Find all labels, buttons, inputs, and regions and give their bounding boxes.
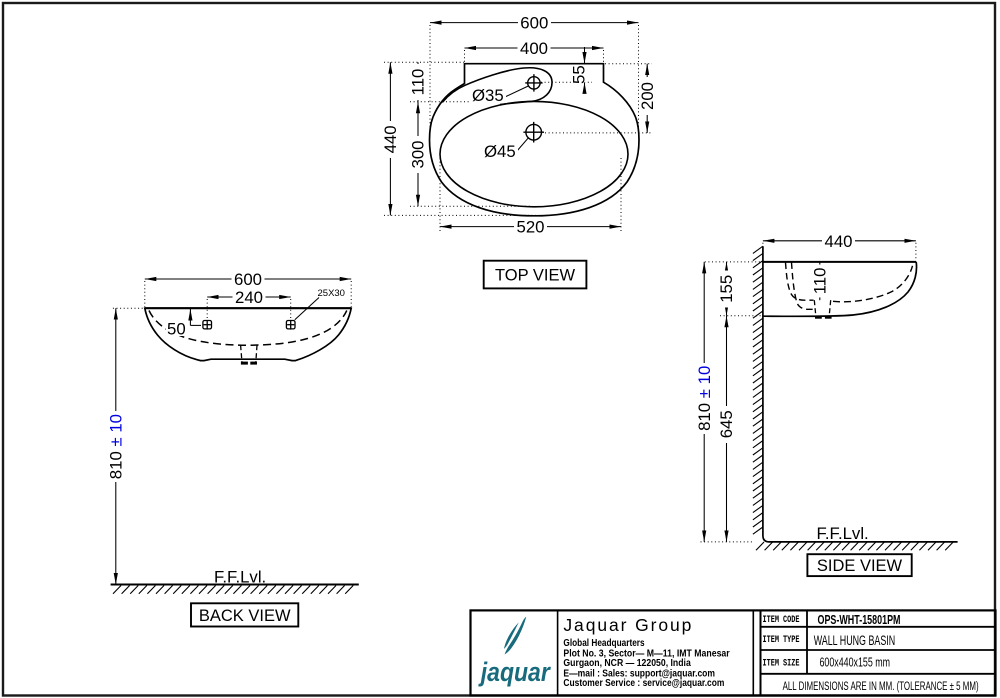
svg-text:WALL HUNG BASIN: WALL HUNG BASIN — [814, 633, 896, 648]
svg-text:440: 440 — [381, 125, 400, 153]
svg-text:Ø45: Ø45 — [484, 142, 516, 161]
svg-text:Customer Service : service@jaq: Customer Service : service@jaquar.com — [563, 677, 724, 689]
svg-text:55: 55 — [570, 65, 589, 84]
svg-text:ITEM CODE: ITEM CODE — [763, 615, 800, 626]
svg-text:OPS-WHT-15801PM: OPS-WHT-15801PM — [818, 612, 901, 627]
svg-text:TOP VIEW: TOP VIEW — [495, 266, 576, 284]
svg-text:50: 50 — [167, 320, 186, 339]
svg-text:400: 400 — [520, 39, 548, 58]
svg-text:810 ± 10: 810 ± 10 — [695, 366, 714, 431]
svg-text:SIDE VIEW: SIDE VIEW — [817, 557, 903, 575]
svg-text:300: 300 — [409, 141, 428, 169]
svg-text:F.F.Lvl.: F.F.Lvl. — [817, 524, 869, 543]
svg-text:F.F.Lvl.: F.F.Lvl. — [214, 568, 266, 587]
svg-text:110: 110 — [409, 69, 428, 96]
svg-text:600: 600 — [520, 14, 548, 33]
svg-text:645: 645 — [717, 410, 736, 438]
svg-text:ITEM SIZE: ITEM SIZE — [763, 659, 800, 670]
svg-text:810 ± 10: 810 ± 10 — [106, 414, 125, 479]
svg-text:200: 200 — [638, 82, 657, 110]
svg-text:155: 155 — [717, 275, 736, 303]
svg-text:440: 440 — [825, 232, 853, 251]
svg-text:Jaquar Group: Jaquar Group — [563, 615, 691, 635]
svg-text:600: 600 — [234, 270, 262, 289]
svg-text:BACK VIEW: BACK VIEW — [199, 607, 291, 625]
svg-text:ALL DIMENSIONS ARE IN MM. (TOL: ALL DIMENSIONS ARE IN MM. (TOLERANCE ± 5… — [783, 679, 979, 693]
svg-text:520: 520 — [517, 218, 545, 237]
svg-text:Ø35: Ø35 — [472, 86, 504, 105]
svg-text:ITEM TYPE: ITEM TYPE — [763, 635, 800, 646]
svg-text:240: 240 — [235, 288, 263, 307]
svg-text:25X30: 25X30 — [318, 288, 345, 299]
svg-text:110: 110 — [810, 268, 829, 295]
svg-text:600x440x155 mm: 600x440x155 mm — [820, 656, 891, 670]
svg-text:jaquar: jaquar — [478, 657, 551, 687]
